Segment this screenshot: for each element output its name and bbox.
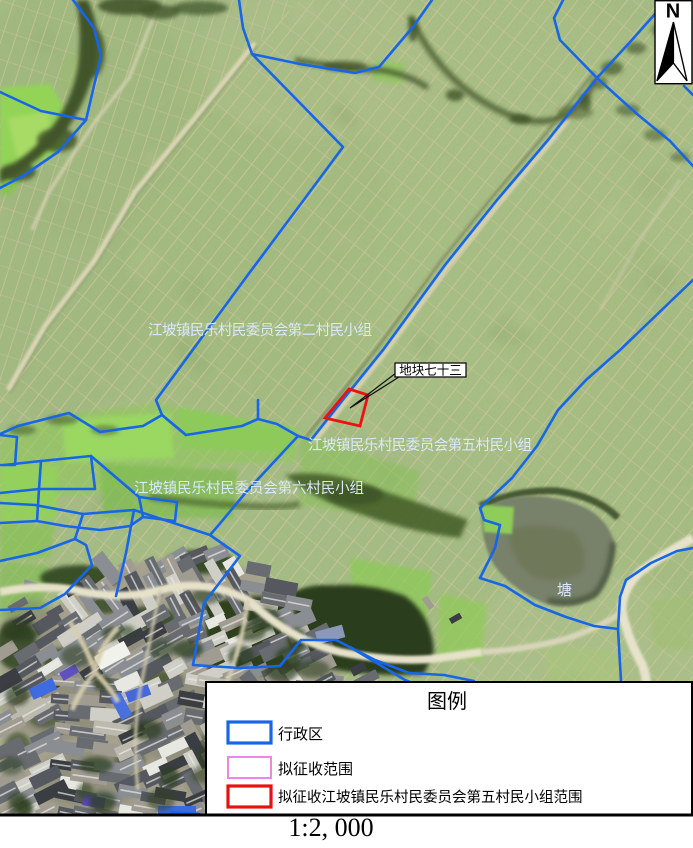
svg-text:拟征收范围: 拟征收范围 <box>278 761 353 778</box>
svg-text:N: N <box>666 1 680 23</box>
svg-text:拟征收江坡镇民乐村民委员会第五村民小组范围: 拟征收江坡镇民乐村民委员会第五村民小组范围 <box>278 788 583 806</box>
svg-text:地块七十三: 地块七十三 <box>399 364 462 378</box>
svg-text:江坡镇民乐村民委员会第二村民小组: 江坡镇民乐村民委员会第二村民小组 <box>148 321 372 339</box>
svg-text:江坡镇民乐村民委员会第五村民小组: 江坡镇民乐村民委员会第五村民小组 <box>308 436 532 454</box>
svg-text:行政区: 行政区 <box>278 726 323 743</box>
svg-text:图例: 图例 <box>427 690 467 713</box>
svg-text:塘: 塘 <box>557 582 572 599</box>
svg-text:江坡镇民乐村民委员会第六村民小组: 江坡镇民乐村民委员会第六村民小组 <box>134 479 364 497</box>
svg-text:1:2, 000: 1:2, 000 <box>288 813 373 842</box>
